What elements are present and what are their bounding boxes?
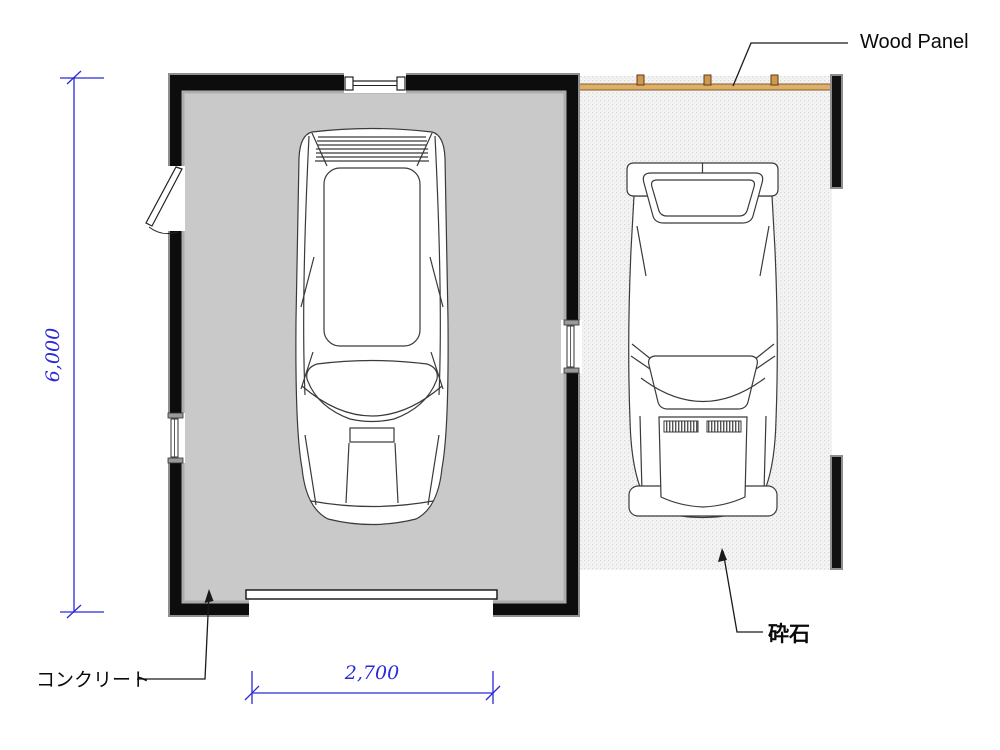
floor-plan-drawing bbox=[0, 0, 1000, 750]
floor-plan-canvas: Wood Panel コンクリート 砕石 6,000 2,700 bbox=[0, 0, 1000, 750]
wood-panel-post bbox=[704, 75, 711, 85]
wood-panel-post bbox=[771, 75, 778, 85]
wood-panel-post bbox=[637, 75, 644, 85]
carport-wall-segment-bottom bbox=[831, 456, 842, 569]
car-hood-vent bbox=[664, 421, 698, 432]
window-right bbox=[561, 320, 582, 373]
car-hood-vent bbox=[707, 421, 741, 432]
carport-wall-segment-top bbox=[831, 75, 842, 188]
car-top-view bbox=[627, 163, 778, 518]
window-top bbox=[344, 70, 406, 93]
wood-panel-label: Wood Panel bbox=[860, 31, 969, 54]
van-rear-ribs bbox=[315, 137, 429, 161]
window-left bbox=[164, 413, 185, 463]
gravel-label: 砕石 bbox=[768, 618, 810, 648]
height-dimension-text: 6,000 bbox=[42, 315, 64, 395]
entry-door-swing bbox=[146, 166, 185, 234]
wood-panel-rail bbox=[573, 84, 832, 90]
van-front-plate bbox=[350, 428, 394, 442]
van-top-view bbox=[296, 129, 448, 525]
width-dimension-text: 2,700 bbox=[332, 662, 412, 684]
dimension-height-6000 bbox=[60, 71, 104, 618]
garage-door bbox=[246, 590, 497, 620]
concrete-label: コンクリート bbox=[36, 665, 150, 692]
van-roof-panel bbox=[324, 168, 420, 346]
garage-door-slab bbox=[246, 590, 497, 599]
